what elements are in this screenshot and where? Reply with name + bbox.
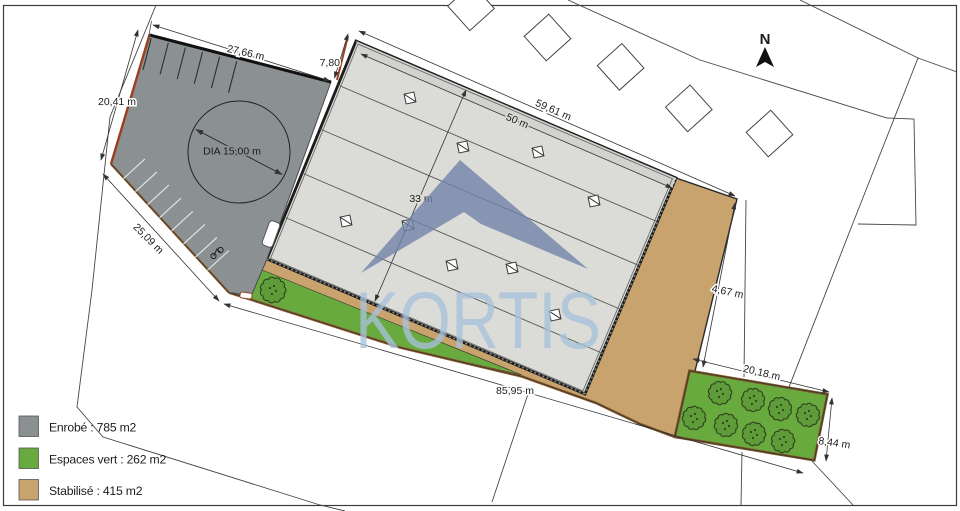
svg-text:DIA 15,00 m: DIA 15,00 m	[203, 146, 261, 158]
svg-text:Espaces vert : 262 m2: Espaces vert : 262 m2	[49, 453, 166, 467]
svg-text:85,95 m: 85,95 m	[496, 385, 534, 397]
svg-text:7,80: 7,80	[320, 57, 341, 69]
svg-text:Stabilisé : 415 m2: Stabilisé : 415 m2	[49, 484, 143, 498]
svg-text:N: N	[760, 31, 771, 48]
svg-text:KORTIS: KORTIS	[355, 276, 601, 366]
svg-text:Enrobé : 785 m2: Enrobé : 785 m2	[49, 421, 137, 435]
svg-text:20,41 m: 20,41 m	[98, 96, 136, 108]
